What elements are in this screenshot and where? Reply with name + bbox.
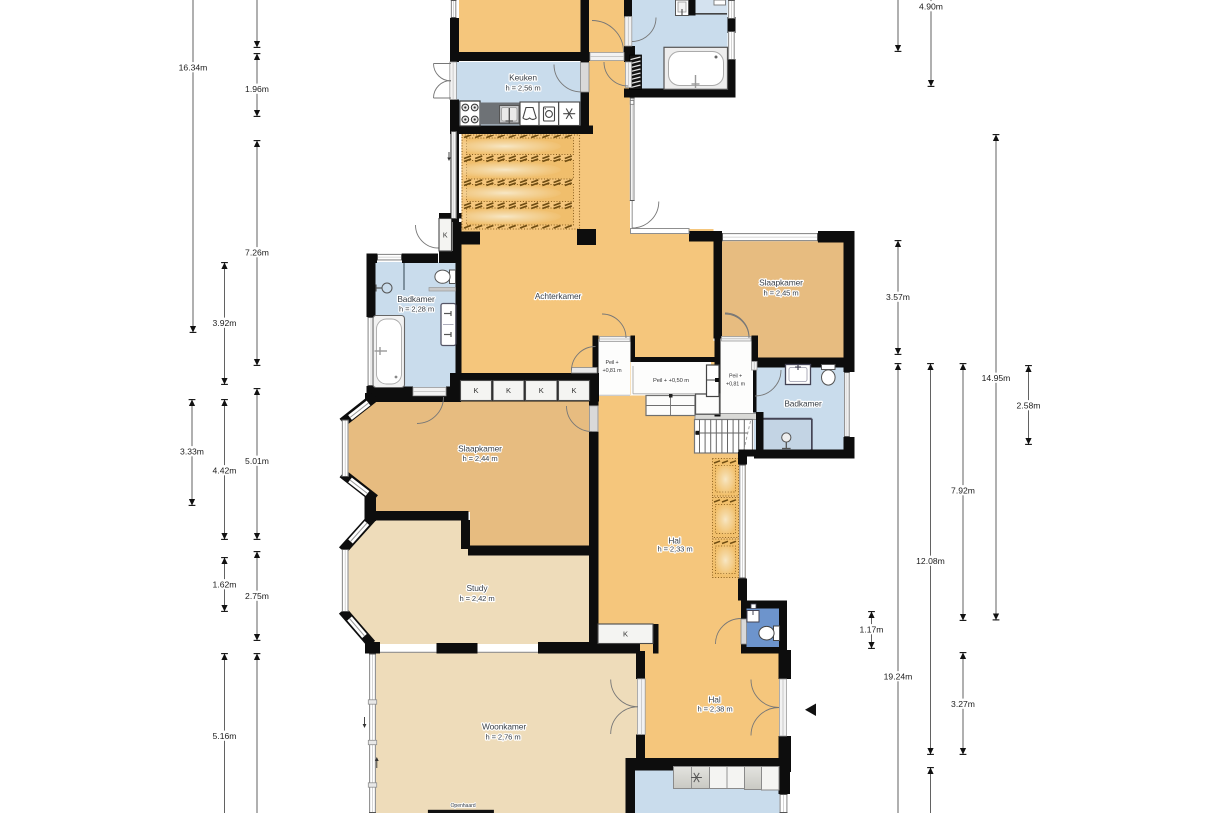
svg-text:K: K [473,386,478,395]
svg-text:h = 2,45 m: h = 2,45 m [763,289,798,298]
svg-text:14.95m: 14.95m [982,373,1011,383]
svg-text:h = 2,56 m: h = 2,56 m [505,84,540,93]
svg-text:5.16m: 5.16m [213,731,237,741]
svg-text:K: K [443,232,448,239]
svg-text:7.92m: 7.92m [951,486,975,496]
svg-text:1.17m: 1.17m [860,625,884,635]
svg-text:16.34m: 16.34m [179,63,208,73]
svg-text:3.57m: 3.57m [886,292,910,302]
svg-text:Badkamer: Badkamer [397,294,435,304]
svg-text:Openhaard: Openhaard [450,803,475,809]
svg-text:Peil +: Peil + [605,360,618,366]
svg-text:h = 2,42 m: h = 2,42 m [459,594,494,603]
svg-text:19.24m: 19.24m [884,672,913,682]
svg-text:12.08m: 12.08m [916,556,945,566]
svg-text:+0,81 m: +0,81 m [603,368,623,374]
svg-text:Study: Study [467,583,489,593]
svg-text:4.90m: 4.90m [919,2,943,12]
svg-text:Keuken: Keuken [509,73,537,83]
svg-text:h = 2,33 m: h = 2,33 m [657,545,692,554]
svg-text:3.92m: 3.92m [213,318,237,328]
svg-text:1.62m: 1.62m [213,580,237,590]
svg-text:4.42m: 4.42m [213,466,237,476]
svg-text:K: K [571,386,576,395]
svg-text:Peil +: Peil + [729,374,742,380]
svg-text:Achterkamer: Achterkamer [535,291,582,301]
svg-text:K: K [623,629,628,638]
svg-text:h = 2,38 m: h = 2,38 m [697,705,732,714]
svg-text:3.33m: 3.33m [180,447,204,457]
svg-text:+0,81 m: +0,81 m [726,382,746,388]
svg-text:K: K [506,386,511,395]
svg-text:7.26m: 7.26m [245,248,269,258]
svg-text:Slaapkamer: Slaapkamer [458,444,502,454]
svg-text:Slaapkamer: Slaapkamer [759,278,803,288]
svg-text:5.01m: 5.01m [245,456,269,466]
svg-text:2.58m: 2.58m [1017,401,1041,411]
svg-text:3.27m: 3.27m [951,699,975,709]
svg-text:h = 2,44 m: h = 2,44 m [462,454,497,463]
svg-text:h = 2,28 m: h = 2,28 m [399,305,434,314]
svg-text:Hal: Hal [708,695,721,705]
svg-text:1.96m: 1.96m [245,84,269,94]
svg-text:Badkamer: Badkamer [784,399,822,409]
svg-text:h = 2,76 m: h = 2,76 m [485,733,520,742]
svg-text:Woonkamer: Woonkamer [482,722,526,732]
svg-text:K: K [539,386,544,395]
svg-text:Peil + +0,50 m: Peil + +0,50 m [653,378,689,384]
svg-text:2.75m: 2.75m [245,591,269,601]
